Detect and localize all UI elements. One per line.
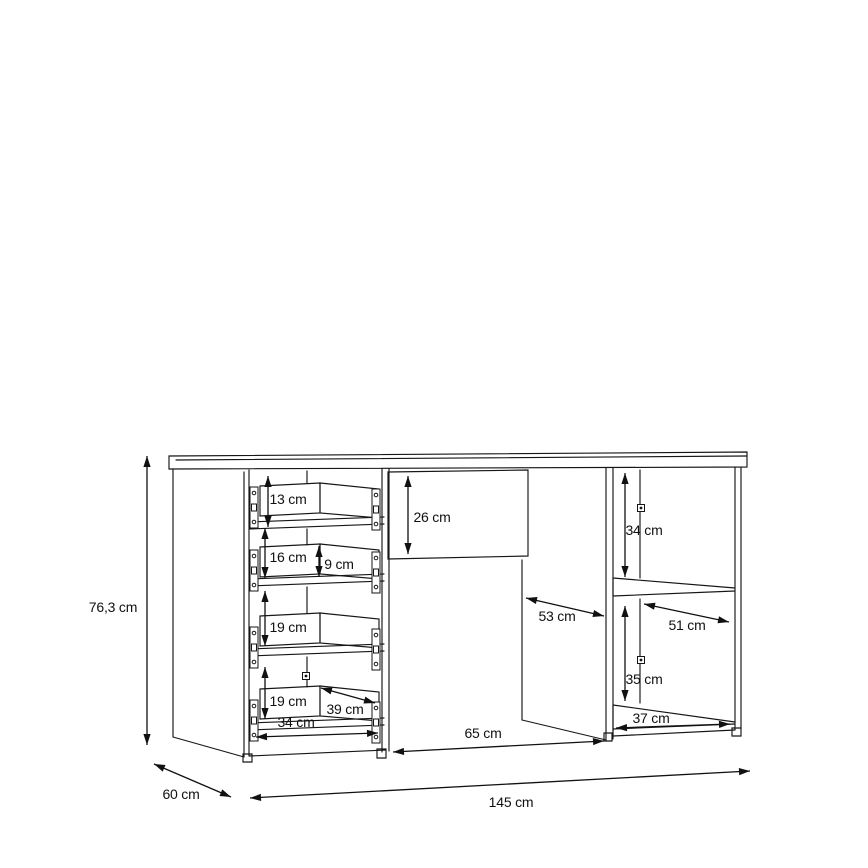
arrowhead-icon bbox=[526, 597, 538, 604]
arrowhead-icon bbox=[393, 748, 404, 755]
arrowhead-icon bbox=[219, 789, 231, 797]
arrowhead-icon bbox=[719, 721, 730, 728]
arrowhead-icon bbox=[264, 476, 271, 487]
hardware-layer bbox=[250, 487, 645, 743]
arrowhead-icon bbox=[363, 697, 375, 704]
drawer-runner-icon bbox=[250, 550, 258, 591]
arrowhead-icon bbox=[616, 724, 627, 731]
drawer-runner-icon bbox=[372, 489, 380, 530]
dimension-label: 35 cm bbox=[625, 671, 662, 687]
dimension-label: 34 cm bbox=[625, 522, 662, 538]
arrowhead-icon bbox=[621, 606, 628, 617]
dimension-label: 26 cm bbox=[413, 509, 450, 525]
dimension-drawer-height-19b: 19 cm bbox=[261, 667, 306, 719]
arrowhead-icon bbox=[621, 566, 628, 577]
dimension-label: 60 cm bbox=[162, 786, 199, 802]
dimension-label: 19 cm bbox=[269, 619, 306, 635]
arrowhead-icon bbox=[143, 734, 150, 745]
dimension-label: 145 cm bbox=[489, 794, 534, 810]
dimension-overall-width: 145 cm bbox=[250, 768, 750, 810]
dimension-label: 53 cm bbox=[538, 608, 575, 624]
right-side-panel bbox=[732, 467, 741, 736]
arrowhead-icon bbox=[315, 546, 322, 557]
arrowhead-icon bbox=[154, 764, 166, 772]
cam-screw-icon bbox=[638, 505, 645, 512]
right-shelf-section bbox=[613, 470, 735, 736]
dimension-label: 37 cm bbox=[632, 710, 669, 726]
arrowhead-icon bbox=[315, 566, 322, 577]
dimension-shelf-bot-height-35: 35 cm bbox=[621, 606, 662, 701]
dimension-niche-height-26: 26 cm bbox=[404, 476, 450, 554]
arrowhead-icon bbox=[621, 473, 628, 484]
dimension-label: 16 cm bbox=[269, 549, 306, 565]
arrowhead-icon bbox=[739, 768, 750, 775]
dimension-label: 13 cm bbox=[269, 491, 306, 507]
dimension-overall-height: 76,3 cm bbox=[89, 456, 151, 745]
dimension-label: 19 cm bbox=[269, 693, 306, 709]
dimension-drawer-side-9: 9 cm bbox=[315, 546, 353, 577]
dimension-door-width-65: 65 cm bbox=[393, 725, 604, 755]
drawer-runner-icon bbox=[250, 487, 258, 528]
dimension-drawer-height-16: 16 cm bbox=[261, 528, 306, 578]
dimension-label: 39 cm bbox=[326, 701, 363, 717]
dimension-cupboard-depth-53: 53 cm bbox=[526, 597, 604, 624]
dimension-drawer-height-19a: 19 cm bbox=[261, 591, 306, 646]
cam-screw-icon bbox=[638, 657, 645, 664]
arrowhead-icon bbox=[261, 528, 268, 539]
dimension-shelf-top-height-34: 34 cm bbox=[621, 473, 662, 577]
dimension-label: 76,3 cm bbox=[89, 599, 137, 615]
dimension-annotations: 76,3 cm60 cm145 cm13 cm16 cm9 cm19 cm19 … bbox=[89, 456, 750, 810]
drawer-runner-icon bbox=[250, 700, 258, 741]
diagram-canvas: 76,3 cm60 cm145 cm13 cm16 cm9 cm19 cm19 … bbox=[0, 0, 868, 868]
drawer-runner-icon bbox=[372, 629, 380, 670]
arrowhead-icon bbox=[261, 667, 268, 678]
drawer-runner-icon bbox=[372, 702, 380, 743]
center-door bbox=[522, 560, 606, 740]
drawer-runner-icon bbox=[250, 627, 258, 668]
arrowhead-icon bbox=[250, 794, 261, 801]
dimension-label: 51 cm bbox=[668, 617, 705, 633]
dimension-label: 34 cm bbox=[277, 714, 314, 730]
arrowhead-icon bbox=[261, 635, 268, 646]
dimension-drawer-depth-39: 39 cm bbox=[321, 687, 375, 717]
drawer-runner-icon bbox=[372, 552, 380, 593]
arrowhead-icon bbox=[404, 543, 411, 554]
arrowhead-icon bbox=[592, 610, 604, 617]
arrowhead-icon bbox=[261, 708, 268, 719]
furniture-dimension-diagram: 76,3 cm60 cm145 cm13 cm16 cm9 cm19 cm19 … bbox=[0, 0, 868, 868]
partition-right bbox=[604, 468, 613, 741]
arrowhead-icon bbox=[321, 687, 333, 694]
arrowhead-icon bbox=[143, 456, 150, 467]
dimension-label: 9 cm bbox=[324, 556, 354, 572]
arrowhead-icon bbox=[621, 690, 628, 701]
arrowhead-icon bbox=[404, 476, 411, 487]
top-panel bbox=[169, 452, 747, 469]
arrowhead-icon bbox=[261, 591, 268, 602]
dimension-overall-depth: 60 cm bbox=[154, 764, 231, 802]
cam-screw-icon bbox=[303, 673, 310, 680]
dimension-label: 65 cm bbox=[464, 725, 501, 741]
dimension-shelf-depth-51: 51 cm bbox=[644, 603, 729, 633]
